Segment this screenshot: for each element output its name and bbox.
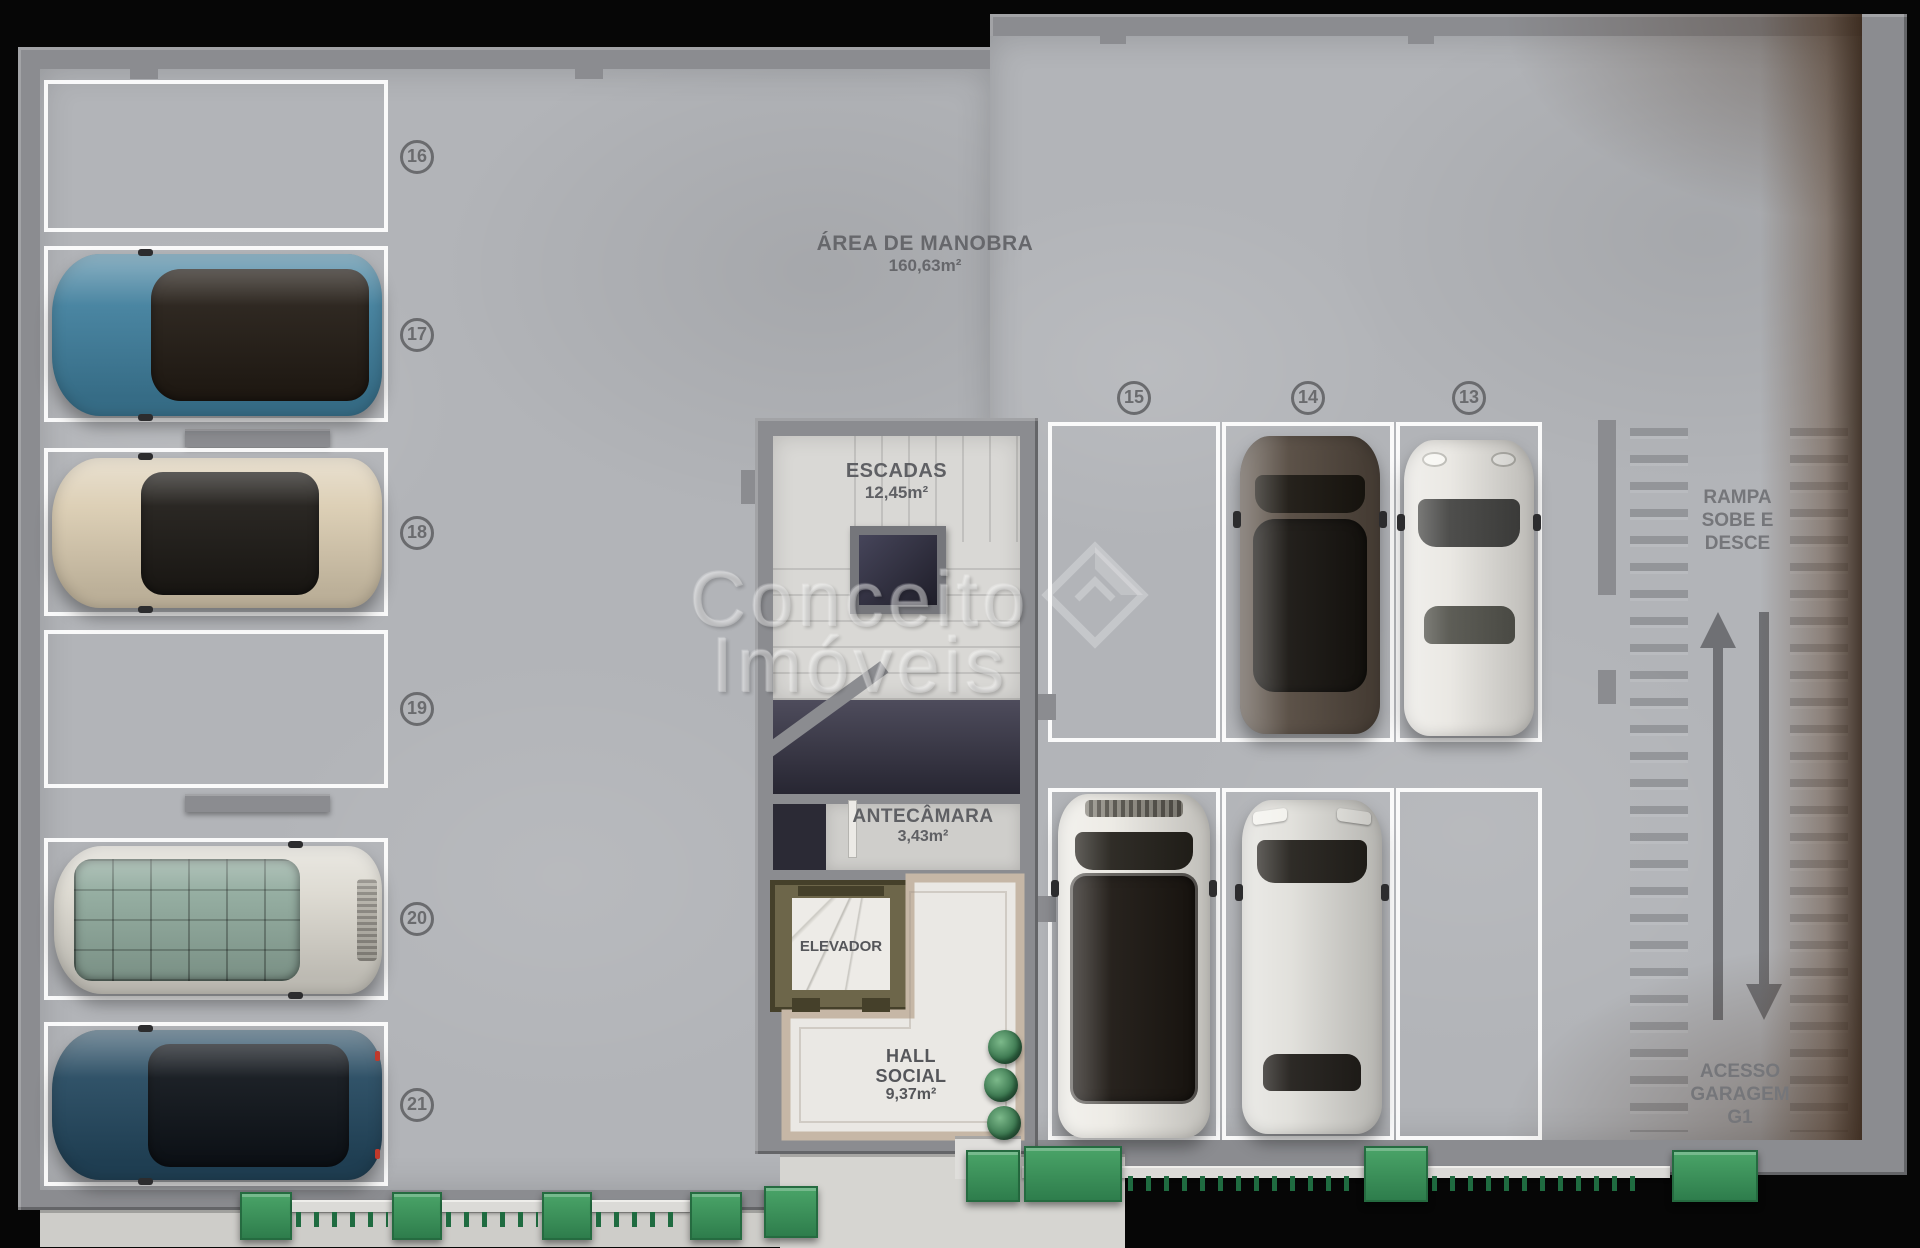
hall-size: 9,37m² xyxy=(846,1086,976,1104)
car-mirror xyxy=(138,249,153,256)
car-mirror xyxy=(138,414,153,421)
ramp-label: RAMPA SOBE E DESCE xyxy=(1660,486,1815,556)
car-mirror xyxy=(1209,880,1217,897)
fence-posts xyxy=(596,1212,686,1227)
stairs-label: ESCADAS 12,45m² xyxy=(773,460,1020,503)
wall-column-bump xyxy=(1100,36,1126,44)
car-mirror xyxy=(1381,884,1389,901)
garage-floor-plan: 16 17 18 19 20 21 15 14 13 xyxy=(0,0,1920,1248)
spot-number-16: 16 xyxy=(400,140,434,174)
car-mirror xyxy=(1397,514,1405,531)
spot-number-14: 14 xyxy=(1291,381,1325,415)
car-gloss xyxy=(1242,800,1382,1134)
spot-number-19: 19 xyxy=(400,692,434,726)
planter-box xyxy=(690,1192,742,1240)
shadow-vignette xyxy=(1500,14,1862,224)
car-spot-14 xyxy=(1240,436,1380,734)
elevator-label: ELEVADOR xyxy=(770,938,912,955)
car-gloss xyxy=(1058,794,1210,1138)
maneuver-area-label: ÁREA DE MANOBRA 160,63m² xyxy=(775,232,1075,276)
core-wall-stub xyxy=(1038,896,1056,922)
planter-box xyxy=(966,1150,1020,1202)
column-stub xyxy=(185,429,330,447)
antechamber-wall-top xyxy=(773,794,1020,804)
maneuver-area-size: 160,63m² xyxy=(775,256,1075,276)
car-mirror xyxy=(1233,511,1241,528)
planter-box xyxy=(764,1186,818,1238)
car-mirror xyxy=(138,1178,153,1185)
car-mirror xyxy=(1051,880,1059,897)
car-mirror xyxy=(1379,511,1387,528)
spot-number-18: 18 xyxy=(400,516,434,550)
ramp-wall-stub xyxy=(1598,670,1616,704)
antechamber-void xyxy=(773,804,826,870)
fence-posts xyxy=(1128,1176,1360,1191)
planter-box xyxy=(1024,1146,1122,1202)
hall-title-line2: SOCIAL xyxy=(846,1066,976,1086)
ramp-label-line2: SOBE E xyxy=(1660,509,1815,532)
fence-rail xyxy=(442,1200,542,1212)
garage-access-label: ACESSO GARAGEM G1 xyxy=(1655,1060,1825,1130)
access-label-line2: GARAGEM xyxy=(1655,1083,1825,1106)
access-label-line3: G1 xyxy=(1655,1106,1825,1129)
car-taillight xyxy=(375,1149,380,1159)
car-mirror xyxy=(288,992,303,999)
column-stub xyxy=(185,794,330,812)
watermark-logo-icon xyxy=(1035,535,1155,655)
elevator-door-tab xyxy=(862,998,890,1012)
car-mirror xyxy=(138,1025,153,1032)
stairs-title: ESCADAS xyxy=(773,460,1020,483)
car-taillight xyxy=(375,1051,380,1061)
fence-posts xyxy=(446,1212,538,1227)
maneuver-area-title: ÁREA DE MANOBRA xyxy=(775,232,1075,256)
car-spot-18 xyxy=(52,458,382,608)
wall-column-bump xyxy=(1408,36,1434,44)
car-gloss xyxy=(1404,440,1534,736)
spot-number-17: 17 xyxy=(400,318,434,352)
fence-posts xyxy=(296,1212,388,1227)
parking-spot-19 xyxy=(44,630,388,788)
plant xyxy=(984,1068,1018,1102)
stairs-size: 12,45m² xyxy=(773,483,1020,503)
fence-posts xyxy=(1432,1176,1637,1191)
hall-title-line1: HALL xyxy=(846,1046,976,1066)
spot-number-21: 21 xyxy=(400,1088,434,1122)
car-spot-20 xyxy=(54,846,382,994)
planter-box xyxy=(392,1192,442,1240)
plant xyxy=(987,1106,1021,1140)
car-lower-middle-spot xyxy=(1242,800,1382,1134)
access-label-line1: ACESSO xyxy=(1655,1060,1825,1083)
fence-rail xyxy=(592,1200,690,1212)
car-lower-left-spot xyxy=(1058,794,1210,1138)
car-spot-21 xyxy=(52,1030,382,1180)
car-gloss xyxy=(52,1030,382,1180)
planter-box xyxy=(1672,1150,1758,1202)
car-mirror xyxy=(138,453,153,460)
social-hall-label: HALL SOCIAL 9,37m² xyxy=(846,1046,976,1104)
antechamber-size: 3,43m² xyxy=(826,828,1020,846)
car-mirror xyxy=(288,841,303,848)
core-wall-stub xyxy=(741,470,755,504)
ramp-label-line3: DESCE xyxy=(1660,532,1815,555)
fence-rail xyxy=(292,1200,392,1212)
spot-number-15: 15 xyxy=(1117,381,1151,415)
plant xyxy=(988,1030,1022,1064)
planter-box xyxy=(240,1192,292,1240)
parking-spot-16 xyxy=(44,80,388,232)
car-gloss xyxy=(54,846,382,994)
planter-box xyxy=(1364,1146,1428,1202)
car-mirror xyxy=(138,606,153,613)
planter-box xyxy=(542,1192,592,1240)
wall-column-bump xyxy=(575,69,603,79)
antechamber-label: ANTECÂMARA 3,43m² xyxy=(826,806,1020,846)
car-spot-13 xyxy=(1404,440,1534,736)
car-spot-17 xyxy=(52,254,382,416)
elevator-door-tab xyxy=(792,998,820,1012)
car-gloss xyxy=(52,458,382,608)
car-gloss xyxy=(1240,436,1380,734)
car-mirror xyxy=(1533,514,1541,531)
spot-number-13: 13 xyxy=(1452,381,1486,415)
elevator-door-bar xyxy=(798,886,884,896)
ramp-label-line1: RAMPA xyxy=(1660,486,1815,509)
antechamber-title: ANTECÂMARA xyxy=(826,806,1020,828)
car-gloss xyxy=(52,254,382,416)
ramp-wall xyxy=(1598,420,1616,595)
wall-column-bump xyxy=(130,69,158,79)
car-mirror xyxy=(1235,884,1243,901)
spot-number-20: 20 xyxy=(400,902,434,936)
